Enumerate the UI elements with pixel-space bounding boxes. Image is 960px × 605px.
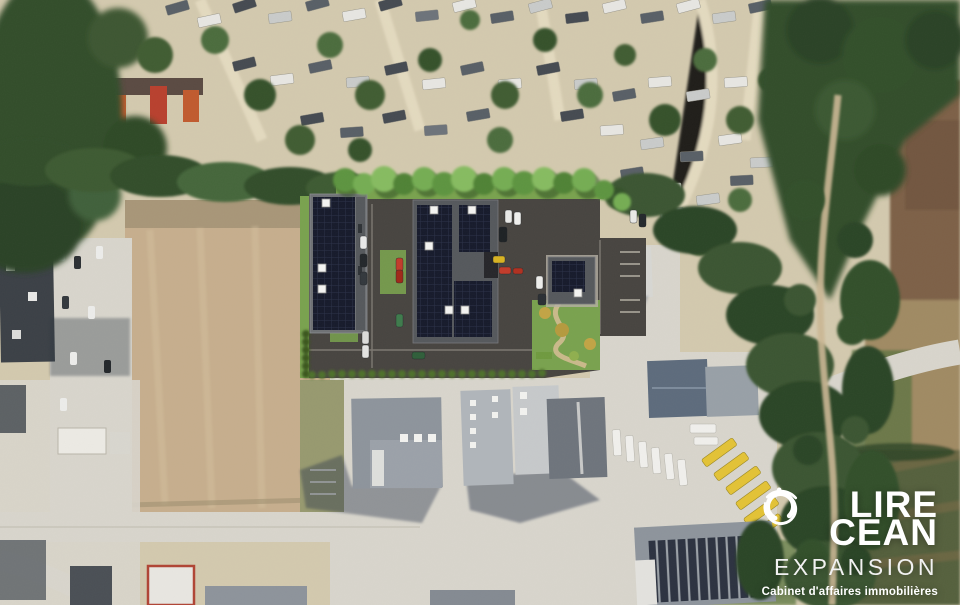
logo-o-swoosh-icon	[759, 486, 803, 530]
logo-word-expansion: EXPANSION	[762, 554, 938, 581]
logo-letters: CEAN	[829, 514, 938, 551]
aerial-site-photo: L IRE CEAN EXPANSION Cabinet d'affaires …	[0, 0, 960, 605]
logo-tagline: Cabinet d'affaires immobilières	[762, 586, 938, 598]
company-logo: L IRE CEAN EXPANSION Cabinet d'affaires …	[762, 486, 938, 598]
